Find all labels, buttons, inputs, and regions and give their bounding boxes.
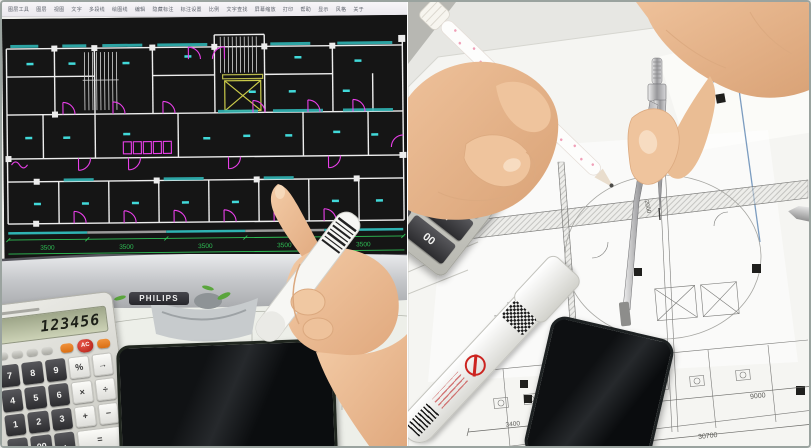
hands-and-compass (408, 2, 811, 448)
compass-needle-point (659, 208, 660, 220)
hand-holding-pencil (408, 62, 558, 220)
compass-hinge (648, 84, 666, 101)
fingernail (275, 185, 285, 199)
folded-finger (291, 289, 325, 315)
photo-collage: 图层工具 图层 视图 文字 多段线 绘图线 编辑 隐藏标注 标注设置 比例 文字… (0, 0, 811, 448)
left-photo-cad-monitor: 图层工具 图层 视图 文字 多段线 绘图线 编辑 隐藏标注 标注设置 比例 文字… (2, 2, 407, 448)
pointing-hand (2, 2, 407, 448)
drafting-compass (619, 58, 666, 326)
right-photo-blueprints: 9000 30700 3400 2000 7 8 4 5 1 2 0 00 (407, 2, 811, 448)
folded-finger (303, 318, 333, 340)
